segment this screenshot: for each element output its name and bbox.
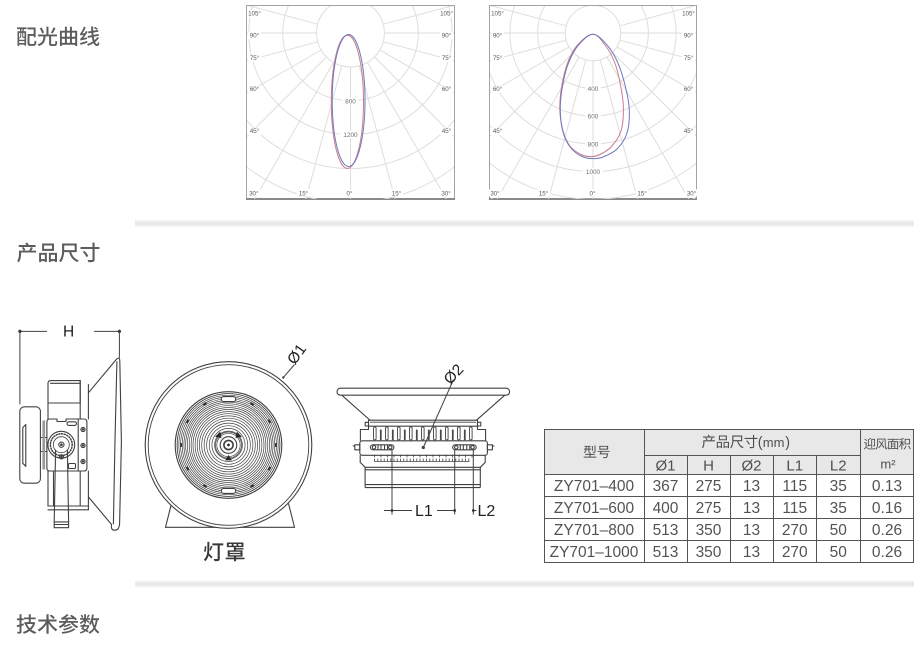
svg-text:105°: 105°	[248, 11, 261, 18]
svg-text:75°: 75°	[250, 55, 260, 62]
svg-text:13: 13	[743, 500, 760, 517]
svg-text:50: 50	[830, 522, 848, 539]
svg-text:115: 115	[782, 500, 807, 517]
svg-text:15°: 15°	[299, 191, 309, 198]
svg-text:800: 800	[588, 141, 599, 148]
svg-text:13: 13	[743, 478, 760, 495]
svg-text:400: 400	[653, 500, 679, 517]
svg-text:45°: 45°	[442, 128, 452, 135]
svg-text:367: 367	[653, 478, 679, 495]
svg-text:75°: 75°	[684, 55, 694, 62]
svg-text:60°: 60°	[250, 86, 260, 93]
svg-text:275: 275	[696, 478, 722, 495]
svg-text:513: 513	[653, 544, 679, 561]
svg-text:90°: 90°	[250, 33, 260, 40]
svg-text:mm: mm	[763, 435, 785, 450]
svg-text:400: 400	[588, 86, 599, 93]
svg-text:Ø1: Ø1	[655, 458, 675, 475]
svg-text:60°: 60°	[493, 86, 503, 93]
svg-text:35: 35	[830, 500, 847, 517]
svg-text:15°: 15°	[539, 191, 549, 198]
svg-text:275: 275	[696, 500, 722, 517]
svg-text:350: 350	[696, 522, 722, 539]
svg-text:0.26: 0.26	[872, 544, 902, 561]
svg-text:90°: 90°	[493, 33, 503, 40]
svg-text:L2: L2	[478, 503, 496, 520]
svg-text:L1: L1	[786, 458, 803, 475]
svg-text:30°: 30°	[249, 191, 259, 198]
svg-text:30°: 30°	[441, 191, 451, 198]
svg-text:30°: 30°	[490, 191, 500, 198]
svg-text:50: 50	[830, 544, 848, 561]
svg-text:270: 270	[782, 544, 808, 561]
svg-text:350: 350	[696, 544, 722, 561]
svg-text:75°: 75°	[493, 55, 503, 62]
svg-text:45°: 45°	[493, 128, 503, 135]
svg-text:15°: 15°	[637, 191, 647, 198]
svg-text:ZY701–400: ZY701–400	[554, 478, 635, 495]
svg-text:H: H	[703, 458, 714, 475]
svg-text:60°: 60°	[684, 86, 694, 93]
svg-text:90°: 90°	[442, 33, 452, 40]
svg-text:600: 600	[588, 113, 599, 120]
svg-text:0°: 0°	[590, 191, 596, 198]
svg-text:ZY701–800: ZY701–800	[554, 522, 635, 539]
svg-text:1000: 1000	[586, 169, 601, 176]
svg-text:105°: 105°	[682, 11, 695, 18]
svg-text:800: 800	[345, 98, 356, 105]
svg-text:30°: 30°	[687, 191, 697, 198]
svg-text:13: 13	[743, 544, 760, 561]
svg-text:H: H	[63, 324, 74, 341]
svg-text:45°: 45°	[250, 128, 260, 135]
svg-text:513: 513	[653, 522, 679, 539]
svg-text:1200: 1200	[343, 132, 358, 139]
svg-text:0.16: 0.16	[872, 500, 902, 517]
svg-text:): )	[785, 435, 790, 451]
svg-text:115: 115	[782, 478, 807, 495]
svg-text:45°: 45°	[684, 128, 694, 135]
svg-text:105°: 105°	[491, 11, 504, 18]
svg-text:ZY701–1000: ZY701–1000	[550, 544, 639, 561]
svg-text:Ø2: Ø2	[741, 458, 761, 475]
svg-text:13: 13	[743, 522, 760, 539]
svg-text:35: 35	[830, 478, 847, 495]
svg-text:60°: 60°	[442, 86, 452, 93]
svg-text:ZY701–600: ZY701–600	[554, 500, 635, 517]
svg-text:L2: L2	[830, 458, 847, 475]
svg-text:L1: L1	[415, 503, 433, 520]
svg-text:0.13: 0.13	[872, 478, 902, 495]
svg-text:0.26: 0.26	[872, 522, 902, 539]
svg-text:m²: m²	[880, 457, 896, 472]
svg-text:105°: 105°	[440, 11, 453, 18]
svg-text:0°: 0°	[347, 191, 353, 198]
svg-text:90°: 90°	[684, 33, 694, 40]
svg-text:15°: 15°	[392, 191, 402, 198]
svg-text:75°: 75°	[442, 55, 452, 62]
svg-text:270: 270	[782, 522, 808, 539]
